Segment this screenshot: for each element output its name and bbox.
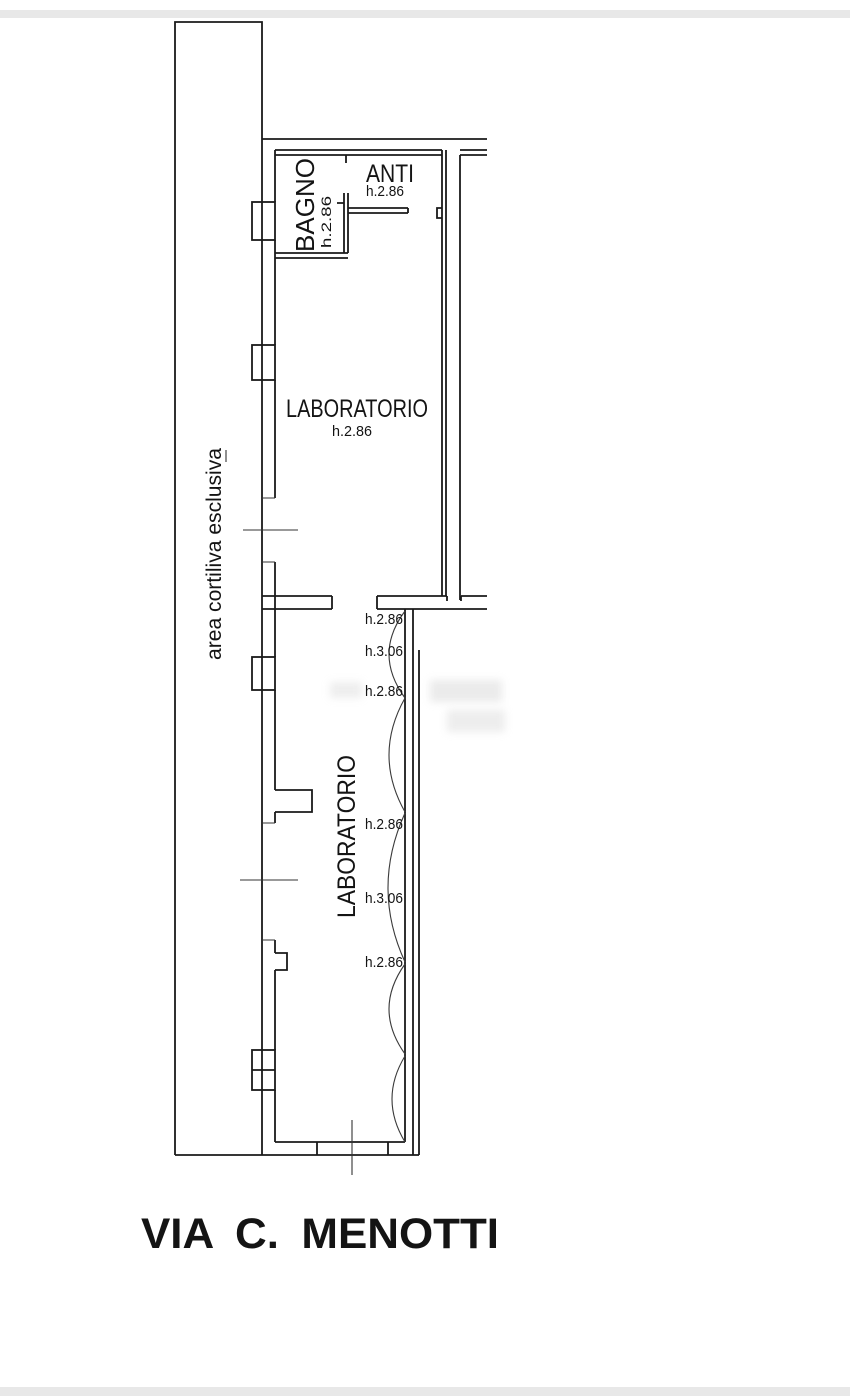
pilaster-large xyxy=(275,790,312,812)
window-box xyxy=(252,345,275,380)
middle-dividing-wall xyxy=(262,596,487,609)
vault-height-mark: h.2.86 xyxy=(365,954,403,971)
room-label-laboratorio-lower: LABORATORIO xyxy=(333,755,361,918)
watermark xyxy=(330,680,505,732)
room-label-laboratorio-upper: LABORATORIO xyxy=(286,395,428,423)
vault-height-mark: h.2.86 xyxy=(365,683,403,700)
upper-right-wall xyxy=(437,150,446,596)
lower-right-wall xyxy=(405,609,419,1155)
scan-edge-artifacts xyxy=(0,10,850,1396)
watermark-blob xyxy=(430,680,502,702)
room-height-anti: h.2.86 xyxy=(366,183,404,200)
vault-height-mark: h.3.06 xyxy=(365,890,403,907)
scan-streak-top xyxy=(0,10,850,18)
opening-ticks xyxy=(262,498,275,940)
scan-streak-bottom xyxy=(0,1387,850,1396)
window-box xyxy=(252,657,275,690)
pilaster-small xyxy=(275,953,287,970)
anti-wall xyxy=(348,208,408,213)
street-label: VIA C. MENOTTI xyxy=(141,1210,499,1258)
room-height-bagno: h.2.86 xyxy=(318,196,334,248)
vault-arc xyxy=(392,1056,405,1142)
vault-height-mark: h.2.86 xyxy=(365,816,403,833)
watermark-blob xyxy=(447,710,505,732)
floor-plan-drawing: area cortiliva esclusiva BAGNO h.2.86 AN… xyxy=(0,0,850,1396)
vault-arc xyxy=(389,698,405,812)
room-height-laboratorio-upper: h.2.86 xyxy=(332,423,372,440)
window-box xyxy=(252,202,275,240)
bottom-wall xyxy=(275,1142,405,1155)
vault-height-mark: h.3.06 xyxy=(365,643,403,660)
courtyard-label: area cortiliva esclusiva xyxy=(203,448,226,660)
vault-arc xyxy=(389,964,405,1054)
vault-height-mark: h.2.86 xyxy=(365,611,403,628)
vault-arc xyxy=(388,813,405,962)
scanned-floor-plan-page: area cortiliva esclusiva BAGNO h.2.86 AN… xyxy=(0,0,850,1396)
room-label-bagno: BAGNO xyxy=(290,158,320,252)
watermark-blob xyxy=(330,682,362,698)
